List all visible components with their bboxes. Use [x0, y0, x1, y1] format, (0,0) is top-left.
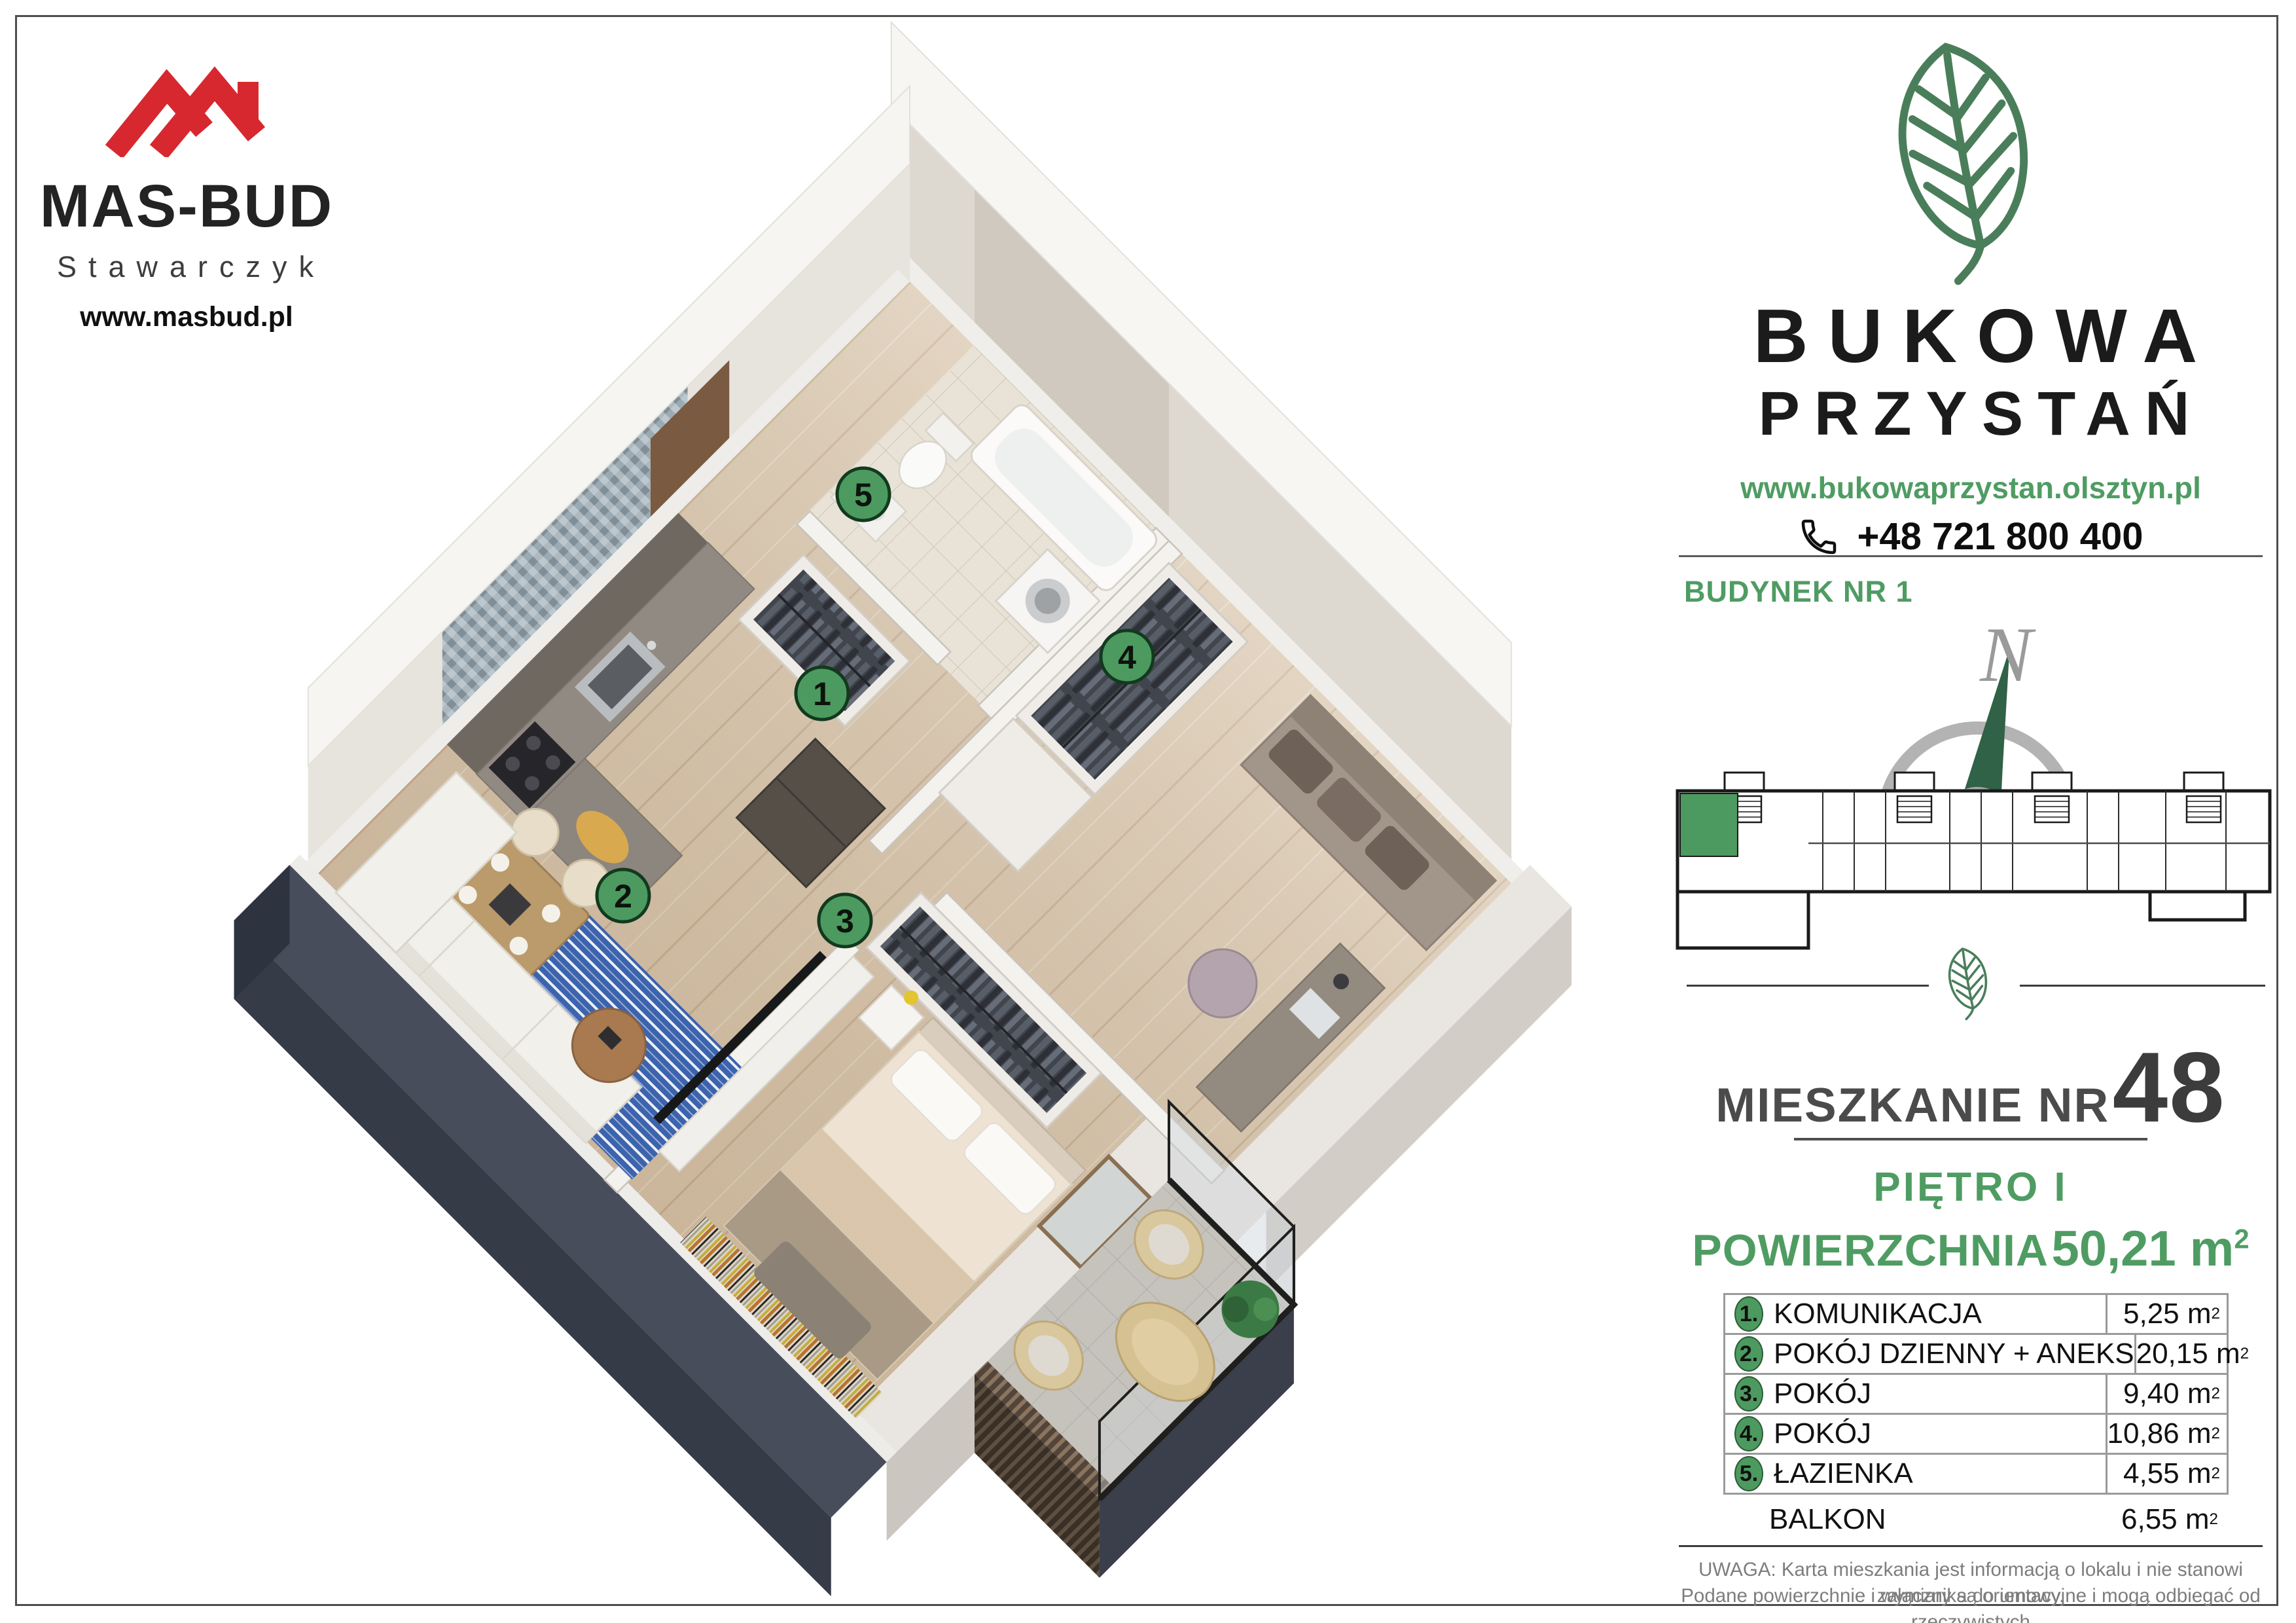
table-row: 4. POKÓJ 10,86 m2 [1725, 1413, 2227, 1453]
project-name-line2: PRZYSTAŃ [1674, 378, 2289, 450]
table-row: 3. POKÓJ 9,40 m2 [1725, 1373, 2227, 1413]
building-label: BUDYNEK NR 1 [1684, 575, 1913, 609]
marker-3: 3 [819, 894, 871, 947]
floor-plan-render: 1 2 3 4 5 [0, 0, 1662, 1623]
isometric-apartment [75, 22, 1662, 1623]
marker-1: 1 [796, 667, 848, 720]
project-name-line1: BUKOWA [1677, 292, 2293, 380]
building-mini-plan [1672, 759, 2274, 956]
rooms-table: 1. KOMUNIKACJA 5,25 m2 2. POKÓJ DZIENNY … [1723, 1293, 2229, 1495]
svg-text:4: 4 [1118, 639, 1136, 676]
leaf-logo-icon [1879, 37, 2062, 292]
unit-area: POWIERZCHNIA 50,21 m2 [1663, 1220, 2278, 1277]
phone-number: +48 721 800 400 [1857, 515, 2143, 558]
unit-underline [1794, 1138, 2147, 1140]
marker-5: 5 [837, 468, 889, 520]
table-row: 1. KOMUNIKACJA 5,25 m2 [1725, 1295, 2227, 1333]
divider-leaf-icon [1943, 945, 1997, 1023]
divider-right [2020, 985, 2265, 987]
phone-row: +48 721 800 400 [1663, 515, 2278, 558]
divider-left [1687, 985, 1929, 987]
disclaimer-divider [1679, 1545, 2263, 1547]
svg-text:3: 3 [836, 903, 854, 939]
project-website: www.bukowaprzystan.olsztyn.pl [1663, 470, 2278, 505]
balcony-row: BALKON 6,55 m2 [1723, 1501, 2225, 1539]
apartment-card: MAS-BUD Stawarczyk www.masbud.pl [0, 0, 2296, 1623]
unit-headline: MIESZKANIE NR 48 [1663, 1030, 2278, 1145]
disclaimer-line2: Podane powierzchnie i wymiary są orienta… [1675, 1583, 2267, 1623]
divider [1679, 555, 2263, 557]
phone-icon [1798, 516, 1840, 558]
compass-north-label: N [1979, 611, 2036, 698]
table-row: 2. POKÓJ DZIENNY + ANEKS 20,15 m2 [1725, 1333, 2227, 1373]
unit-label: MIESZKANIE NR [1715, 1079, 2109, 1132]
unit-number: 48 [2113, 1032, 2226, 1143]
marker-2: 2 [597, 869, 649, 922]
highlighted-unit [1680, 793, 1738, 856]
svg-text:1: 1 [813, 676, 831, 712]
svg-text:5: 5 [854, 477, 872, 513]
unit-floor: PIĘTRO I [1663, 1164, 2278, 1211]
marker-4: 4 [1101, 630, 1153, 683]
table-row: 5. ŁAZIENKA 4,55 m2 [1725, 1453, 2227, 1493]
svg-text:2: 2 [614, 878, 632, 915]
info-panel: BUKOWA document.currentScript.previousEl… [1663, 17, 2278, 1604]
